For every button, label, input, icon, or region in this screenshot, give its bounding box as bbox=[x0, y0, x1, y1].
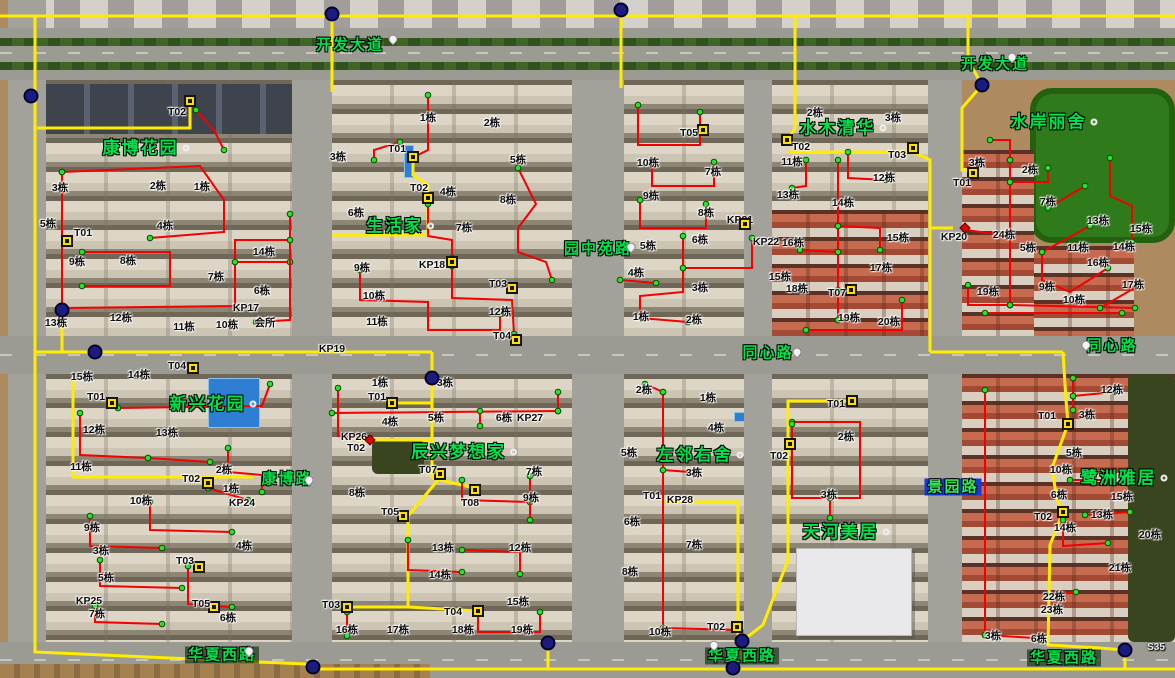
cable-marker-label: T03 bbox=[176, 556, 194, 567]
building-label: 17栋 bbox=[1122, 280, 1144, 291]
community-label: 辰兴梦想家 bbox=[411, 444, 517, 461]
cable-marker[interactable] bbox=[731, 621, 743, 633]
cable-marker[interactable] bbox=[510, 334, 522, 346]
building-label: 13栋 bbox=[432, 543, 454, 554]
building-label: 3栋 bbox=[692, 283, 708, 294]
building-label: 2栋 bbox=[838, 432, 854, 443]
cable-marker[interactable] bbox=[469, 484, 481, 496]
cable-marker-label: T03 bbox=[322, 600, 340, 611]
building-label: 7栋 bbox=[456, 223, 472, 234]
building-label: 6栋 bbox=[1031, 634, 1047, 645]
building-label: 4栋 bbox=[708, 423, 724, 434]
road-label: 开发大道 bbox=[316, 38, 384, 53]
cable-marker[interactable] bbox=[1062, 418, 1074, 430]
cable-marker[interactable] bbox=[187, 362, 199, 374]
building-label: 9栋 bbox=[354, 263, 370, 274]
cable-marker[interactable] bbox=[472, 605, 484, 617]
cable-marker[interactable] bbox=[341, 601, 353, 613]
cable-marker-label: T08 bbox=[461, 498, 479, 509]
building-label: 7栋 bbox=[526, 467, 542, 478]
building-label: 13栋 bbox=[45, 318, 67, 329]
cable-marker-label: T04 bbox=[493, 331, 511, 342]
building-label: 17栋 bbox=[870, 263, 892, 274]
building-label: 14栋 bbox=[1113, 242, 1135, 253]
junction-node[interactable] bbox=[306, 660, 321, 675]
building-label: 2栋 bbox=[216, 465, 232, 476]
building-label: 4栋 bbox=[628, 268, 644, 279]
building-label: 2栋 bbox=[636, 385, 652, 396]
building-label: 13栋 bbox=[1087, 216, 1109, 227]
building-label: 1栋 bbox=[372, 378, 388, 389]
building-label: 13栋 bbox=[156, 428, 178, 439]
building-label: 6栋 bbox=[624, 517, 640, 528]
building-label: 15栋 bbox=[1111, 492, 1133, 503]
road-label: 开发大道 bbox=[961, 57, 1029, 72]
building-label: 9栋 bbox=[1039, 282, 1055, 293]
junction-node[interactable] bbox=[24, 89, 39, 104]
cable-marker-label: T01 bbox=[827, 399, 845, 410]
building-label: 17栋 bbox=[387, 625, 409, 636]
building-label: 4栋 bbox=[440, 187, 456, 198]
building-label: 4栋 bbox=[236, 541, 252, 552]
building-label: 6栋 bbox=[348, 208, 364, 219]
building-label: 12栋 bbox=[509, 543, 531, 554]
building-label: 12栋 bbox=[873, 173, 895, 184]
cable-marker[interactable] bbox=[739, 218, 751, 230]
building-label: 3栋 bbox=[330, 152, 346, 163]
building-label: 12栋 bbox=[83, 425, 105, 436]
road-label: 华夏西路 bbox=[1027, 650, 1101, 667]
building-label: 9栋 bbox=[523, 493, 539, 504]
building-label: 2栋 bbox=[686, 315, 702, 326]
junction-node[interactable] bbox=[1118, 643, 1133, 658]
road-id-label: S35 bbox=[1147, 643, 1165, 653]
building-label: 13栋 bbox=[1091, 510, 1113, 521]
satellite-map[interactable]: 开发大道开发大道园中苑路同心路同心路康博路景园路华夏西路华夏西路华夏西路康博花园… bbox=[0, 0, 1175, 678]
building-label: 8栋 bbox=[622, 567, 638, 578]
cable-marker[interactable] bbox=[697, 124, 709, 136]
community-label: 鹭洲雅居 bbox=[1081, 470, 1168, 487]
building-label: KP26 bbox=[341, 432, 367, 443]
building-label: 3栋 bbox=[93, 546, 109, 557]
cable-marker-label: T04 bbox=[168, 361, 186, 372]
cable-marker-label: T02 bbox=[168, 107, 186, 118]
community-label: 水木清华 bbox=[800, 120, 887, 137]
cable-marker-label: T02 bbox=[1034, 512, 1052, 523]
building-label: 15栋 bbox=[769, 272, 791, 283]
building-label: 8栋 bbox=[500, 195, 516, 206]
community-ring bbox=[250, 401, 257, 408]
building-label: 1栋 bbox=[194, 182, 210, 193]
community-ring bbox=[883, 529, 890, 536]
cable-marker-label: T03 bbox=[489, 279, 507, 290]
cable-marker[interactable] bbox=[386, 397, 398, 409]
cable-marker[interactable] bbox=[784, 438, 796, 450]
cable-marker-label: T01 bbox=[368, 392, 386, 403]
community-ring bbox=[880, 125, 887, 132]
building-label: 10栋 bbox=[1063, 295, 1085, 306]
building-label: 19栋 bbox=[838, 313, 860, 324]
junction-node[interactable] bbox=[735, 634, 750, 649]
building-label: 7栋 bbox=[208, 272, 224, 283]
building-label: 4栋 bbox=[157, 221, 173, 232]
building-label: 5栋 bbox=[40, 219, 56, 230]
building-label: 14栋 bbox=[832, 198, 854, 209]
community-ring bbox=[1161, 475, 1168, 482]
building-label: 3栋 bbox=[885, 113, 901, 124]
building-label: 11栋 bbox=[781, 157, 803, 168]
building-label: KP28 bbox=[667, 495, 693, 506]
building-label: 1栋 bbox=[633, 312, 649, 323]
cable-marker-label: T05 bbox=[192, 599, 210, 610]
building-label: 7栋 bbox=[705, 167, 721, 178]
cable-marker[interactable] bbox=[193, 561, 205, 573]
building-label: 3栋 bbox=[985, 631, 1001, 642]
building-label: 5栋 bbox=[1066, 448, 1082, 459]
junction-node[interactable] bbox=[614, 3, 629, 18]
building-label: KP20 bbox=[941, 232, 967, 243]
building-label: 21栋 bbox=[1109, 563, 1131, 574]
cable-marker-label: T01 bbox=[388, 144, 406, 155]
building-label: 8栋 bbox=[120, 256, 136, 267]
building-label: 9栋 bbox=[84, 523, 100, 534]
building-label: 10栋 bbox=[130, 496, 152, 507]
community-label: 天河美居 bbox=[803, 524, 890, 541]
building-label: KP27 bbox=[517, 413, 543, 424]
junction-node[interactable] bbox=[425, 371, 440, 386]
cable-marker-label: KP18 bbox=[419, 260, 445, 271]
building-label: 14栋 bbox=[128, 370, 150, 381]
junction-node[interactable] bbox=[325, 7, 340, 22]
building-label: 14栋 bbox=[429, 570, 451, 581]
building-label: 11栋 bbox=[173, 322, 195, 333]
cable-marker[interactable] bbox=[506, 282, 518, 294]
building-label: 4栋 bbox=[382, 417, 398, 428]
building-label: 3栋 bbox=[686, 468, 702, 479]
building-label: T01 bbox=[643, 491, 661, 502]
community-label: 新兴花园 bbox=[170, 396, 257, 413]
road-label: 同心路 bbox=[1086, 339, 1137, 354]
cable-marker[interactable] bbox=[907, 142, 919, 154]
road-label: 华夏西路 bbox=[705, 648, 779, 665]
community-ring bbox=[183, 145, 190, 152]
community-label: 康博花园 bbox=[103, 140, 190, 157]
building-label: 8栋 bbox=[698, 208, 714, 219]
building-label: 14栋 bbox=[1054, 523, 1076, 534]
building-label: 6栋 bbox=[692, 235, 708, 246]
junction-node[interactable] bbox=[88, 345, 103, 360]
building-label: 6栋 bbox=[254, 286, 270, 297]
building-label: 11栋 bbox=[1067, 243, 1089, 254]
community-label: 水岸丽舍 bbox=[1011, 114, 1098, 131]
building-label: 5栋 bbox=[510, 155, 526, 166]
community-ring bbox=[1091, 119, 1098, 126]
building-label: 19栋 bbox=[977, 287, 999, 298]
building-label: 10栋 bbox=[649, 627, 671, 638]
cable-marker[interactable] bbox=[1057, 506, 1069, 518]
building-label: 14栋 bbox=[253, 247, 275, 258]
building-label: 7栋 bbox=[686, 540, 702, 551]
building-label: 6栋 bbox=[1051, 490, 1067, 501]
building-label: 2栋 bbox=[150, 181, 166, 192]
building-label: 16栋 bbox=[1087, 258, 1109, 269]
building-label: KP24 bbox=[229, 498, 255, 509]
building-label: 3栋 bbox=[52, 183, 68, 194]
building-label: 2栋 bbox=[484, 118, 500, 129]
building-label: 2栋 bbox=[807, 108, 823, 119]
cable-marker-label: T05 bbox=[680, 128, 698, 139]
building-label: 1栋 bbox=[700, 393, 716, 404]
building-label: 10栋 bbox=[216, 320, 238, 331]
annotation-layer: 开发大道开发大道园中苑路同心路同心路康博路景园路华夏西路华夏西路华夏西路康博花园… bbox=[0, 0, 1175, 678]
building-label: 9栋 bbox=[69, 257, 85, 268]
building-label: 13栋 bbox=[777, 190, 799, 201]
building-label: KP19 bbox=[319, 344, 345, 355]
cable-marker[interactable] bbox=[407, 151, 419, 163]
cable-marker[interactable] bbox=[106, 397, 118, 409]
community-label: 生活家 bbox=[366, 218, 434, 235]
building-label: 5栋 bbox=[1020, 243, 1036, 254]
map-pin[interactable] bbox=[387, 33, 400, 46]
building-label: 19栋 bbox=[511, 625, 533, 636]
cable-marker[interactable] bbox=[61, 235, 73, 247]
building-label: 3栋 bbox=[1079, 410, 1095, 421]
building-label: KP17 bbox=[233, 303, 259, 314]
building-label: 5栋 bbox=[621, 448, 637, 459]
building-label: 12栋 bbox=[1101, 385, 1123, 396]
road-label: 同心路 bbox=[742, 346, 793, 361]
cable-marker[interactable] bbox=[446, 256, 458, 268]
building-label: 9栋 bbox=[643, 191, 659, 202]
building-label: 22栋 bbox=[1043, 592, 1065, 603]
junction-node[interactable] bbox=[541, 636, 556, 651]
building-label: 16栋 bbox=[336, 625, 358, 636]
building-label: 15栋 bbox=[1130, 224, 1152, 235]
building-label: 15栋 bbox=[507, 597, 529, 608]
building-label: 6栋 bbox=[220, 613, 236, 624]
building-label: 15栋 bbox=[887, 233, 909, 244]
building-label: 20栋 bbox=[1139, 530, 1161, 541]
building-label: 7栋 bbox=[89, 609, 105, 620]
cable-marker-label: T02 bbox=[707, 622, 725, 633]
building-label: 5栋 bbox=[640, 241, 656, 252]
cable-marker-label: T01 bbox=[74, 228, 92, 239]
cable-marker[interactable] bbox=[202, 477, 214, 489]
road-label: 园中苑路 bbox=[564, 242, 632, 257]
building-label: 15栋 bbox=[71, 372, 93, 383]
building-label: 10栋 bbox=[637, 158, 659, 169]
cable-marker-label: T07 bbox=[419, 465, 437, 476]
building-label: KP22 bbox=[753, 237, 779, 248]
building-label: 12栋 bbox=[489, 307, 511, 318]
community-ring bbox=[737, 452, 744, 459]
cable-marker-label: T05 bbox=[381, 507, 399, 518]
building-label: 6栋 bbox=[496, 413, 512, 424]
community-label: 左邻右舍 bbox=[657, 447, 744, 464]
cable-marker-label: T02 bbox=[792, 142, 810, 153]
building-label: 10栋 bbox=[1050, 465, 1072, 476]
building-label: 3栋 bbox=[821, 490, 837, 501]
building-label: 23栋 bbox=[1041, 605, 1063, 616]
cable-marker-label: T01 bbox=[87, 392, 105, 403]
building-label: 20栋 bbox=[878, 317, 900, 328]
cable-marker-label: T01 bbox=[1038, 411, 1056, 422]
building-label: 10栋 bbox=[363, 291, 385, 302]
cable-marker-label: T02 bbox=[770, 451, 788, 462]
building-label: 1栋 bbox=[420, 113, 436, 124]
building-label: 11栋 bbox=[366, 317, 388, 328]
building-label: 5栋 bbox=[428, 413, 444, 424]
community-ring bbox=[510, 449, 517, 456]
building-label: 1栋 bbox=[223, 484, 239, 495]
building-label: 11栋 bbox=[70, 462, 92, 473]
building-label: 8栋 bbox=[349, 488, 365, 499]
building-label: 12栋 bbox=[110, 313, 132, 324]
building-label: 18栋 bbox=[786, 284, 808, 295]
building-label: 2栋 bbox=[1022, 165, 1038, 176]
cable-marker[interactable] bbox=[846, 395, 858, 407]
building-label: 会所 bbox=[255, 318, 276, 329]
cable-marker[interactable] bbox=[845, 284, 857, 296]
road-label: 景园路 bbox=[924, 479, 981, 496]
cable-marker-label: T02 bbox=[410, 183, 428, 194]
cable-marker-label: T02 bbox=[182, 474, 200, 485]
junction-node[interactable] bbox=[975, 78, 990, 93]
building-label: 7栋 bbox=[1040, 197, 1056, 208]
cable-marker-label: T03 bbox=[888, 150, 906, 161]
cable-marker-label: T01 bbox=[953, 178, 971, 189]
building-label: 5栋 bbox=[98, 573, 114, 584]
junction-node[interactable] bbox=[55, 303, 70, 318]
cable-marker[interactable] bbox=[422, 192, 434, 204]
building-label: KP25 bbox=[76, 596, 102, 607]
building-label: 16栋 bbox=[782, 238, 804, 249]
community-ring bbox=[427, 223, 434, 230]
building-label: 24栋 bbox=[993, 230, 1015, 241]
junction-node[interactable] bbox=[726, 661, 741, 676]
cable-marker-label: T07 bbox=[828, 288, 846, 299]
building-label: T02 bbox=[347, 443, 365, 454]
building-label: 18栋 bbox=[452, 625, 474, 636]
cable-marker-label: T04 bbox=[444, 607, 462, 618]
